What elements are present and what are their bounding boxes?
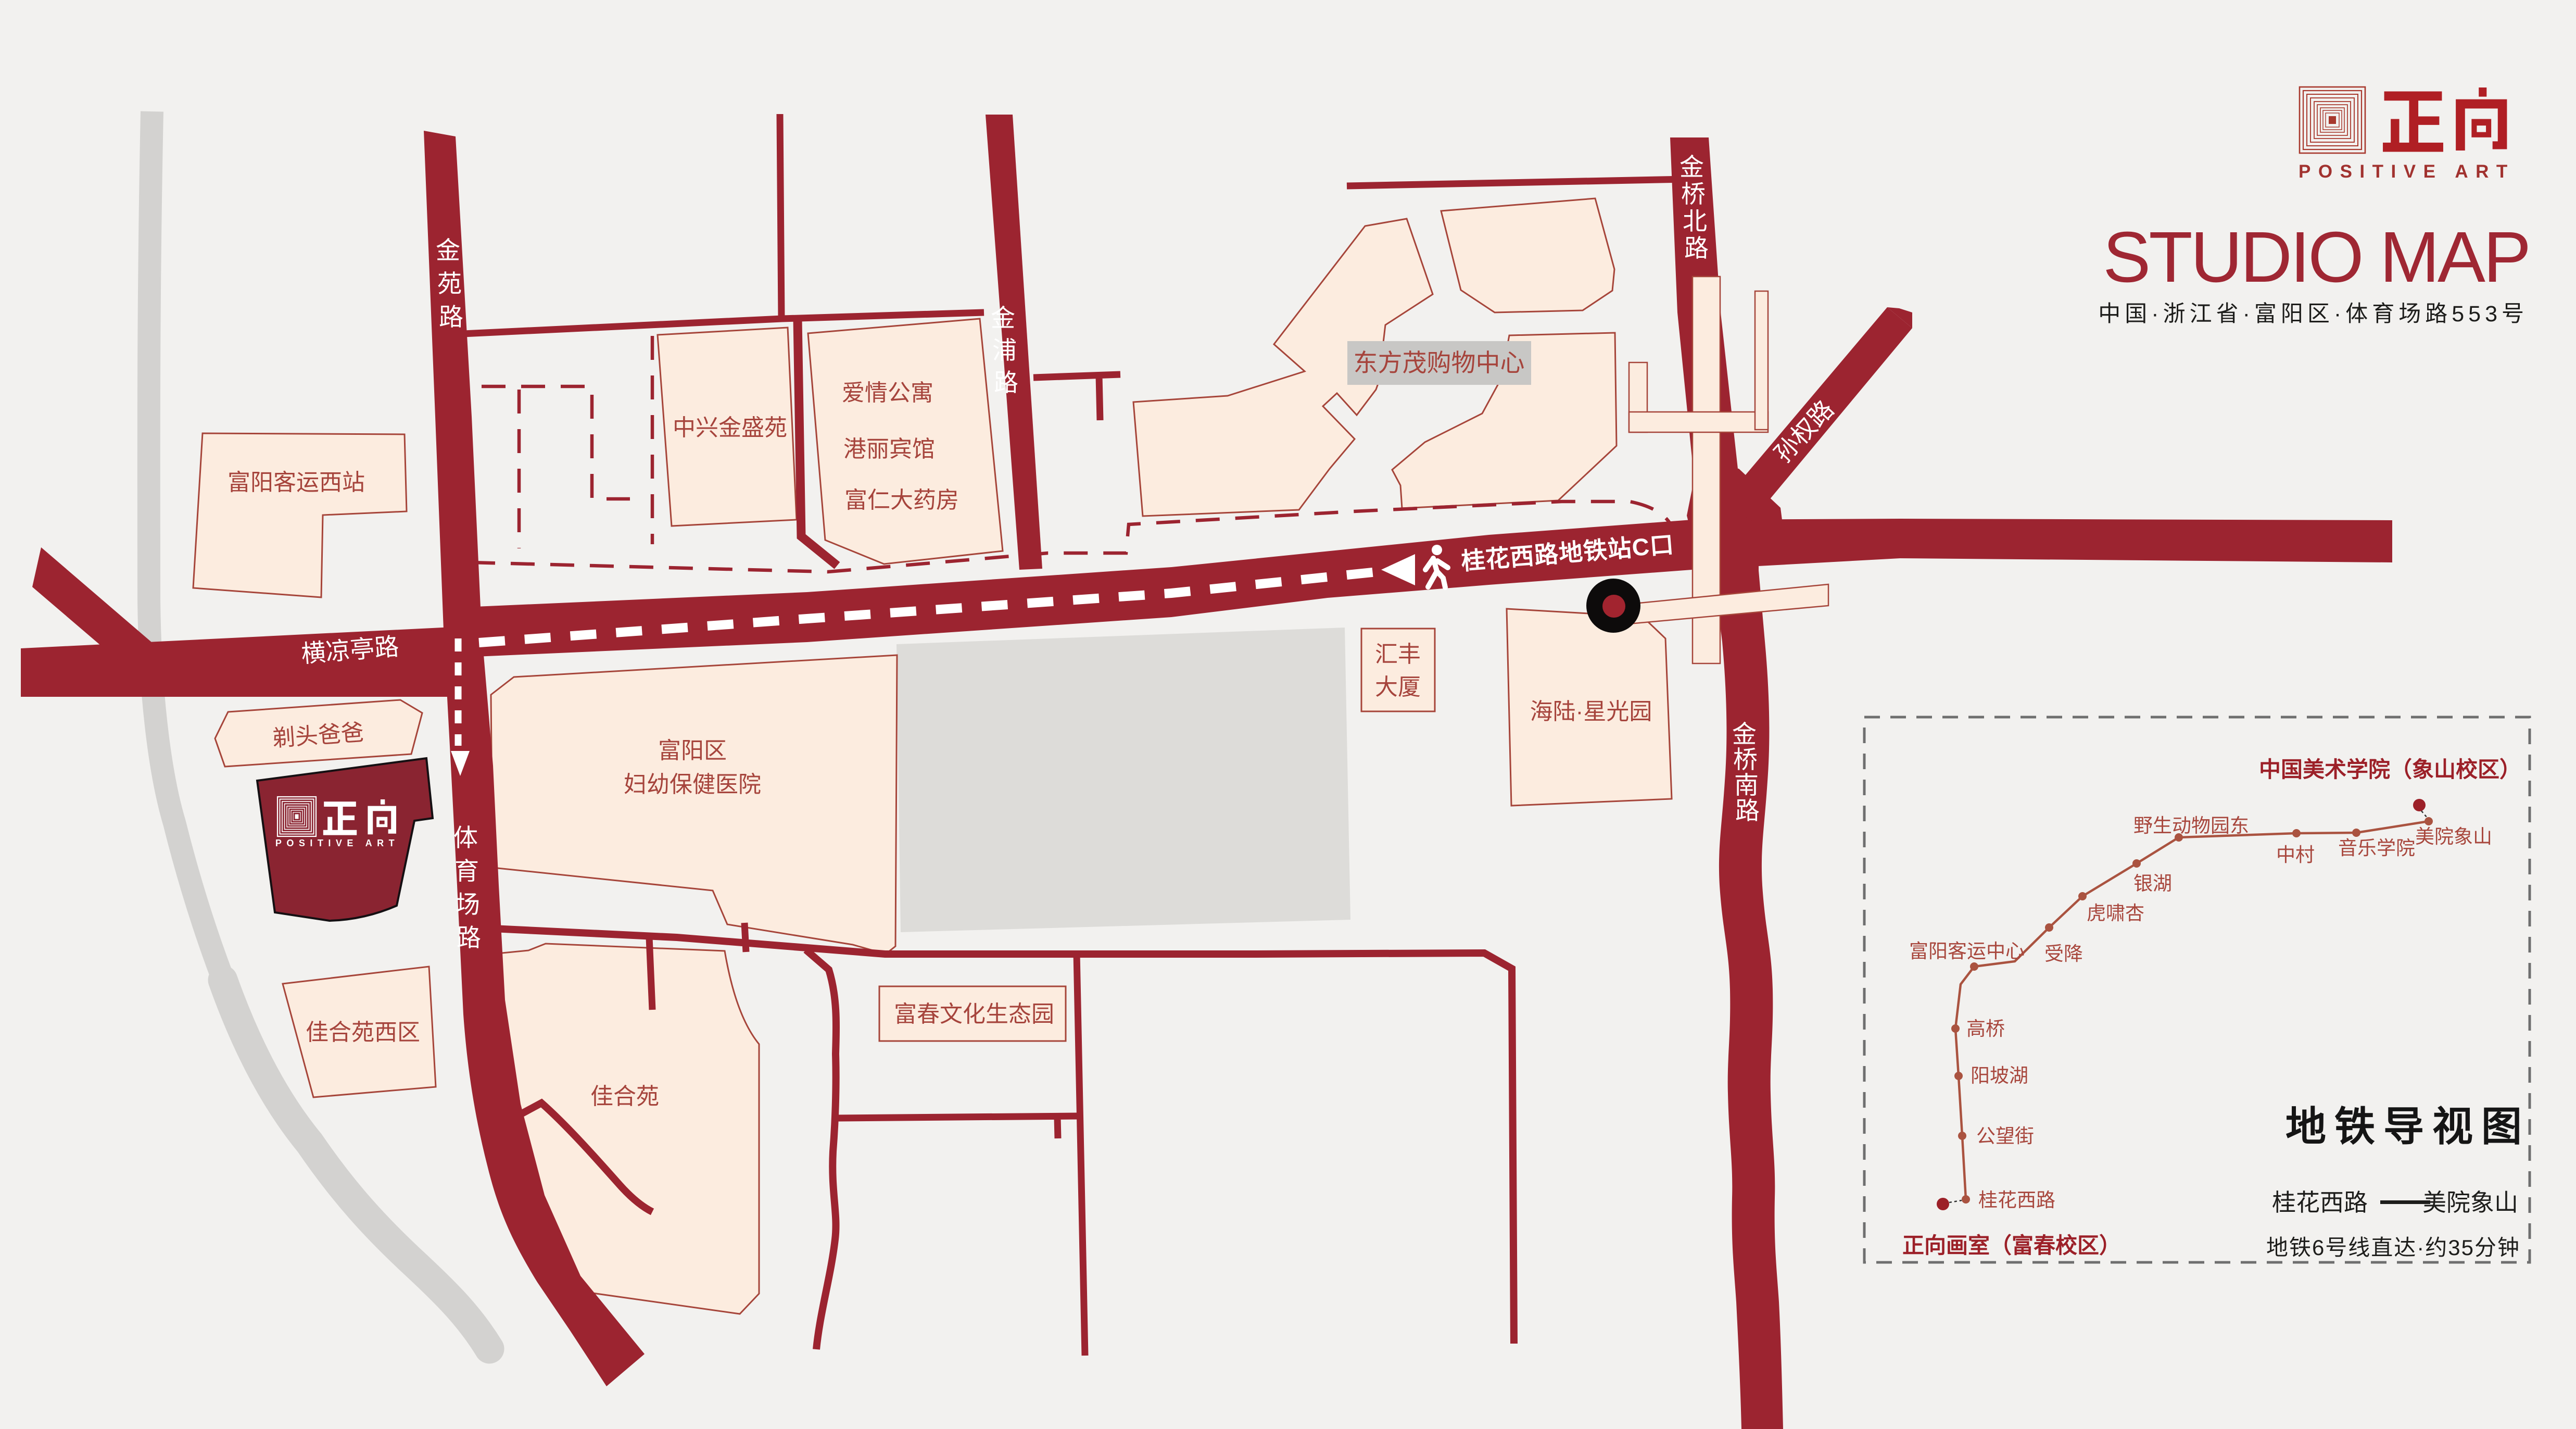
svg-text:中村: 中村 bbox=[2276, 844, 2315, 866]
svg-text:美院象山: 美院象山 bbox=[2415, 826, 2492, 847]
svg-text:地铁导视图: 地铁导视图 bbox=[2285, 1104, 2530, 1149]
svg-text:STUDIO MAP: STUDIO MAP bbox=[2103, 217, 2529, 297]
svg-text:音乐学院: 音乐学院 bbox=[2338, 837, 2415, 859]
svg-text:银湖: 银湖 bbox=[2133, 873, 2172, 894]
svg-text:受降: 受降 bbox=[2044, 943, 2083, 964]
svg-text:高桥: 高桥 bbox=[1966, 1018, 2005, 1039]
svg-text:富阳客运西站: 富阳客运西站 bbox=[228, 470, 365, 495]
svg-text:金浦路: 金浦路 bbox=[991, 304, 1018, 396]
svg-text:中国·浙江省·富阳区·体育场路553号: 中国·浙江省·富阳区·体育场路553号 bbox=[2098, 302, 2528, 327]
svg-text:桂花西路: 桂花西路 bbox=[1978, 1189, 2055, 1211]
svg-text:东方茂购物中心: 东方茂购物中心 bbox=[1354, 349, 1525, 377]
svg-text:中兴金盛苑: 中兴金盛苑 bbox=[673, 415, 787, 441]
svg-text:地铁6号线直达·约35分钟: 地铁6号线直达·约35分钟 bbox=[2266, 1235, 2520, 1260]
svg-text:公望街: 公望街 bbox=[1976, 1125, 2034, 1147]
svg-text:中国美术学院（象山校区）: 中国美术学院（象山校区） bbox=[2259, 757, 2521, 782]
svg-text:正向画室（富春校区）: 正向画室（富春校区） bbox=[1902, 1233, 2121, 1258]
svg-text:POSITIVE ART: POSITIVE ART bbox=[2299, 161, 2515, 182]
svg-text:POSITIVE ART: POSITIVE ART bbox=[275, 838, 399, 848]
svg-text:富仁大药房: 富仁大药房 bbox=[844, 487, 959, 513]
svg-text:金桥南路: 金桥南路 bbox=[1732, 720, 1760, 824]
svg-text:阳坡湖: 阳坡湖 bbox=[1971, 1065, 2028, 1086]
svg-text:爱情公寓: 爱情公寓 bbox=[842, 380, 933, 406]
svg-text:佳合苑: 佳合苑 bbox=[590, 1084, 659, 1109]
svg-text:海陆·星光园: 海陆·星光园 bbox=[1530, 699, 1652, 724]
svg-text:富春文化生态园: 富春文化生态园 bbox=[894, 1001, 1054, 1027]
svg-text:虎啸杏: 虎啸杏 bbox=[2087, 902, 2144, 924]
svg-text:野生动物园东: 野生动物园东 bbox=[2133, 815, 2249, 836]
svg-text:富阳客运中心: 富阳客运中心 bbox=[1909, 941, 2025, 962]
svg-text:金苑路: 金苑路 bbox=[436, 236, 463, 331]
svg-text:美院象山: 美院象山 bbox=[2422, 1189, 2518, 1216]
svg-text:桂花西路: 桂花西路 bbox=[2272, 1189, 2368, 1216]
svg-text:港丽宾馆: 港丽宾馆 bbox=[843, 436, 935, 462]
svg-text:佳合苑西区: 佳合苑西区 bbox=[306, 1020, 420, 1045]
